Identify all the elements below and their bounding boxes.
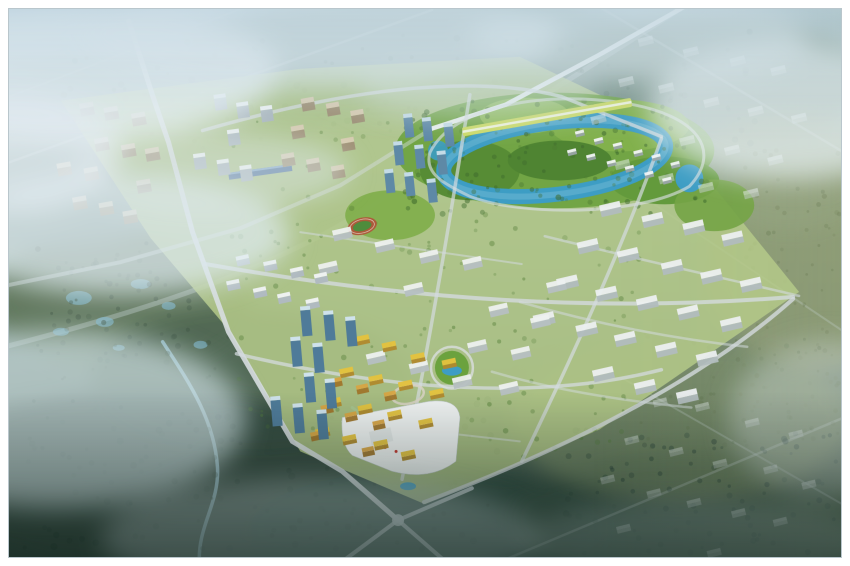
image-frame bbox=[0, 0, 850, 566]
aerial-masterplan-rendering bbox=[8, 8, 842, 558]
bottom-shadow-overlay bbox=[9, 9, 841, 557]
